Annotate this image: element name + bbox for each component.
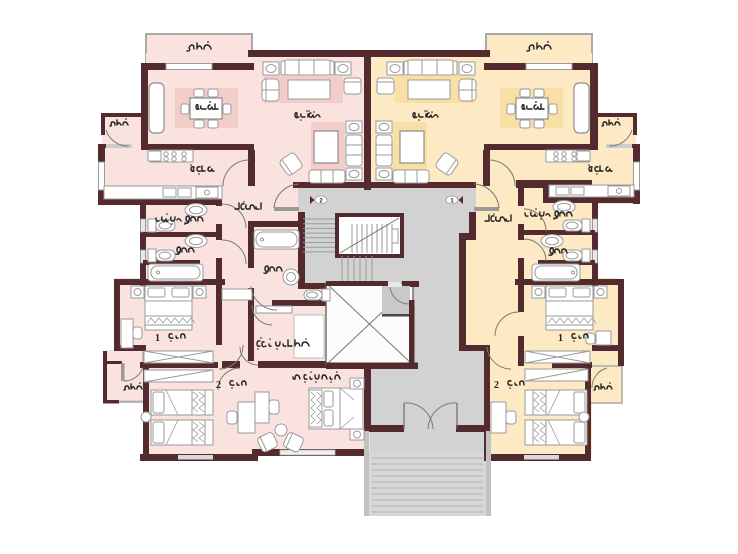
svg-text:1: 1	[155, 333, 160, 344]
svg-text:2: 2	[216, 380, 221, 391]
svg-text:1: 1	[558, 333, 563, 344]
svg-text:2: 2	[494, 380, 499, 391]
